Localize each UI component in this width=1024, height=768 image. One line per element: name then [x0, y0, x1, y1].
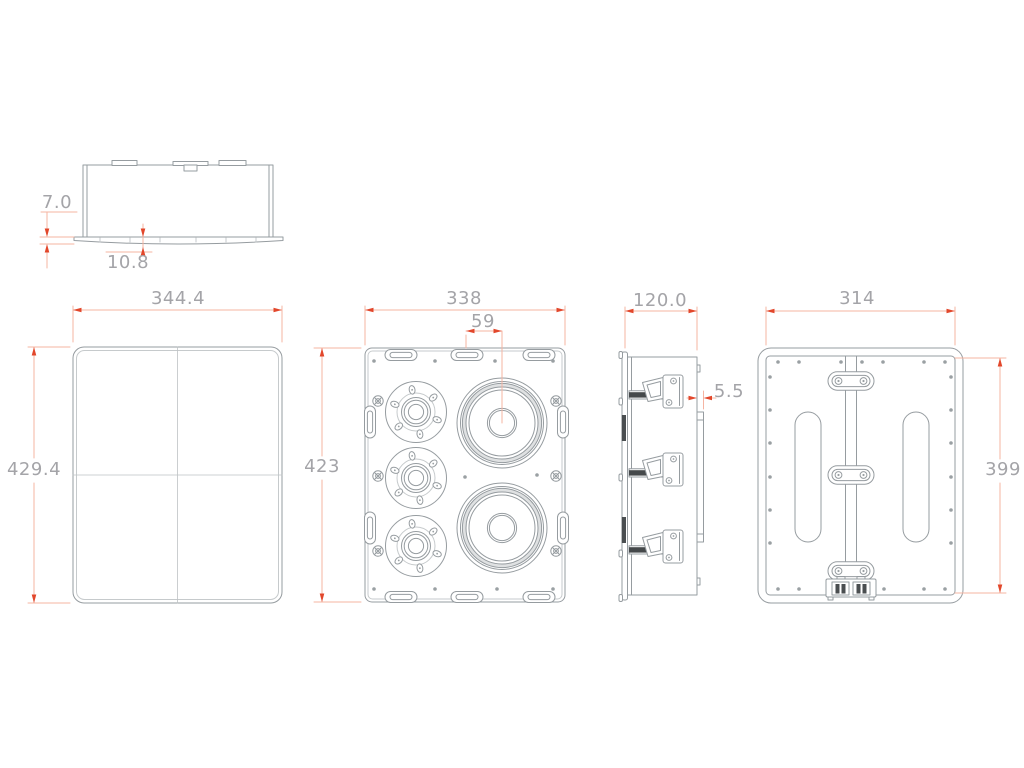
woofer-2: [457, 483, 547, 573]
top-profile-view: [74, 161, 283, 245]
midrange-driver-1: [386, 382, 447, 443]
top-tab-left: [112, 161, 137, 166]
hanging-bracket-2: [828, 466, 874, 484]
dim-label-overall-width: 344.4: [151, 290, 205, 308]
dim-label-baffle-height: 423: [304, 458, 340, 476]
top-center-latch: [184, 165, 197, 171]
dim-label-overall-height: 429.4: [7, 461, 61, 479]
dim-label-baffle-width: 338: [446, 290, 482, 308]
hanging-bracket-3: [828, 562, 874, 580]
top-tab-right: [219, 161, 246, 166]
dim-label-rear-width: 314: [839, 290, 875, 308]
rear-rail-side: [697, 412, 704, 542]
dim-label-flange-thickness: 7.0: [42, 194, 72, 212]
front-flange-profile: [74, 237, 283, 244]
rear-view: [758, 348, 963, 603]
dim-label-woofer-offset: 59: [471, 313, 495, 331]
overall-front-view: [73, 347, 282, 603]
midrange-driver-2: [386, 448, 447, 509]
technical-drawing-canvas: 7.0 10.8 344.4 429.4 338 59 423 120.0 5.…: [0, 0, 1024, 768]
speaker-orthographic-drawing: [0, 0, 1024, 768]
side-view: [619, 352, 704, 602]
dim-label-rear-height: 399: [985, 461, 1021, 479]
front-baffle-view: [365, 348, 569, 603]
dim-label-depth: 120.0: [633, 292, 687, 310]
midrange-driver-3: [386, 516, 447, 577]
dim-label-clamp-gap: 5.5: [714, 383, 744, 401]
hanging-bracket-1: [828, 372, 874, 390]
dim-label-flange-depth: 10.8: [107, 254, 149, 272]
terminal-block: [826, 577, 876, 601]
